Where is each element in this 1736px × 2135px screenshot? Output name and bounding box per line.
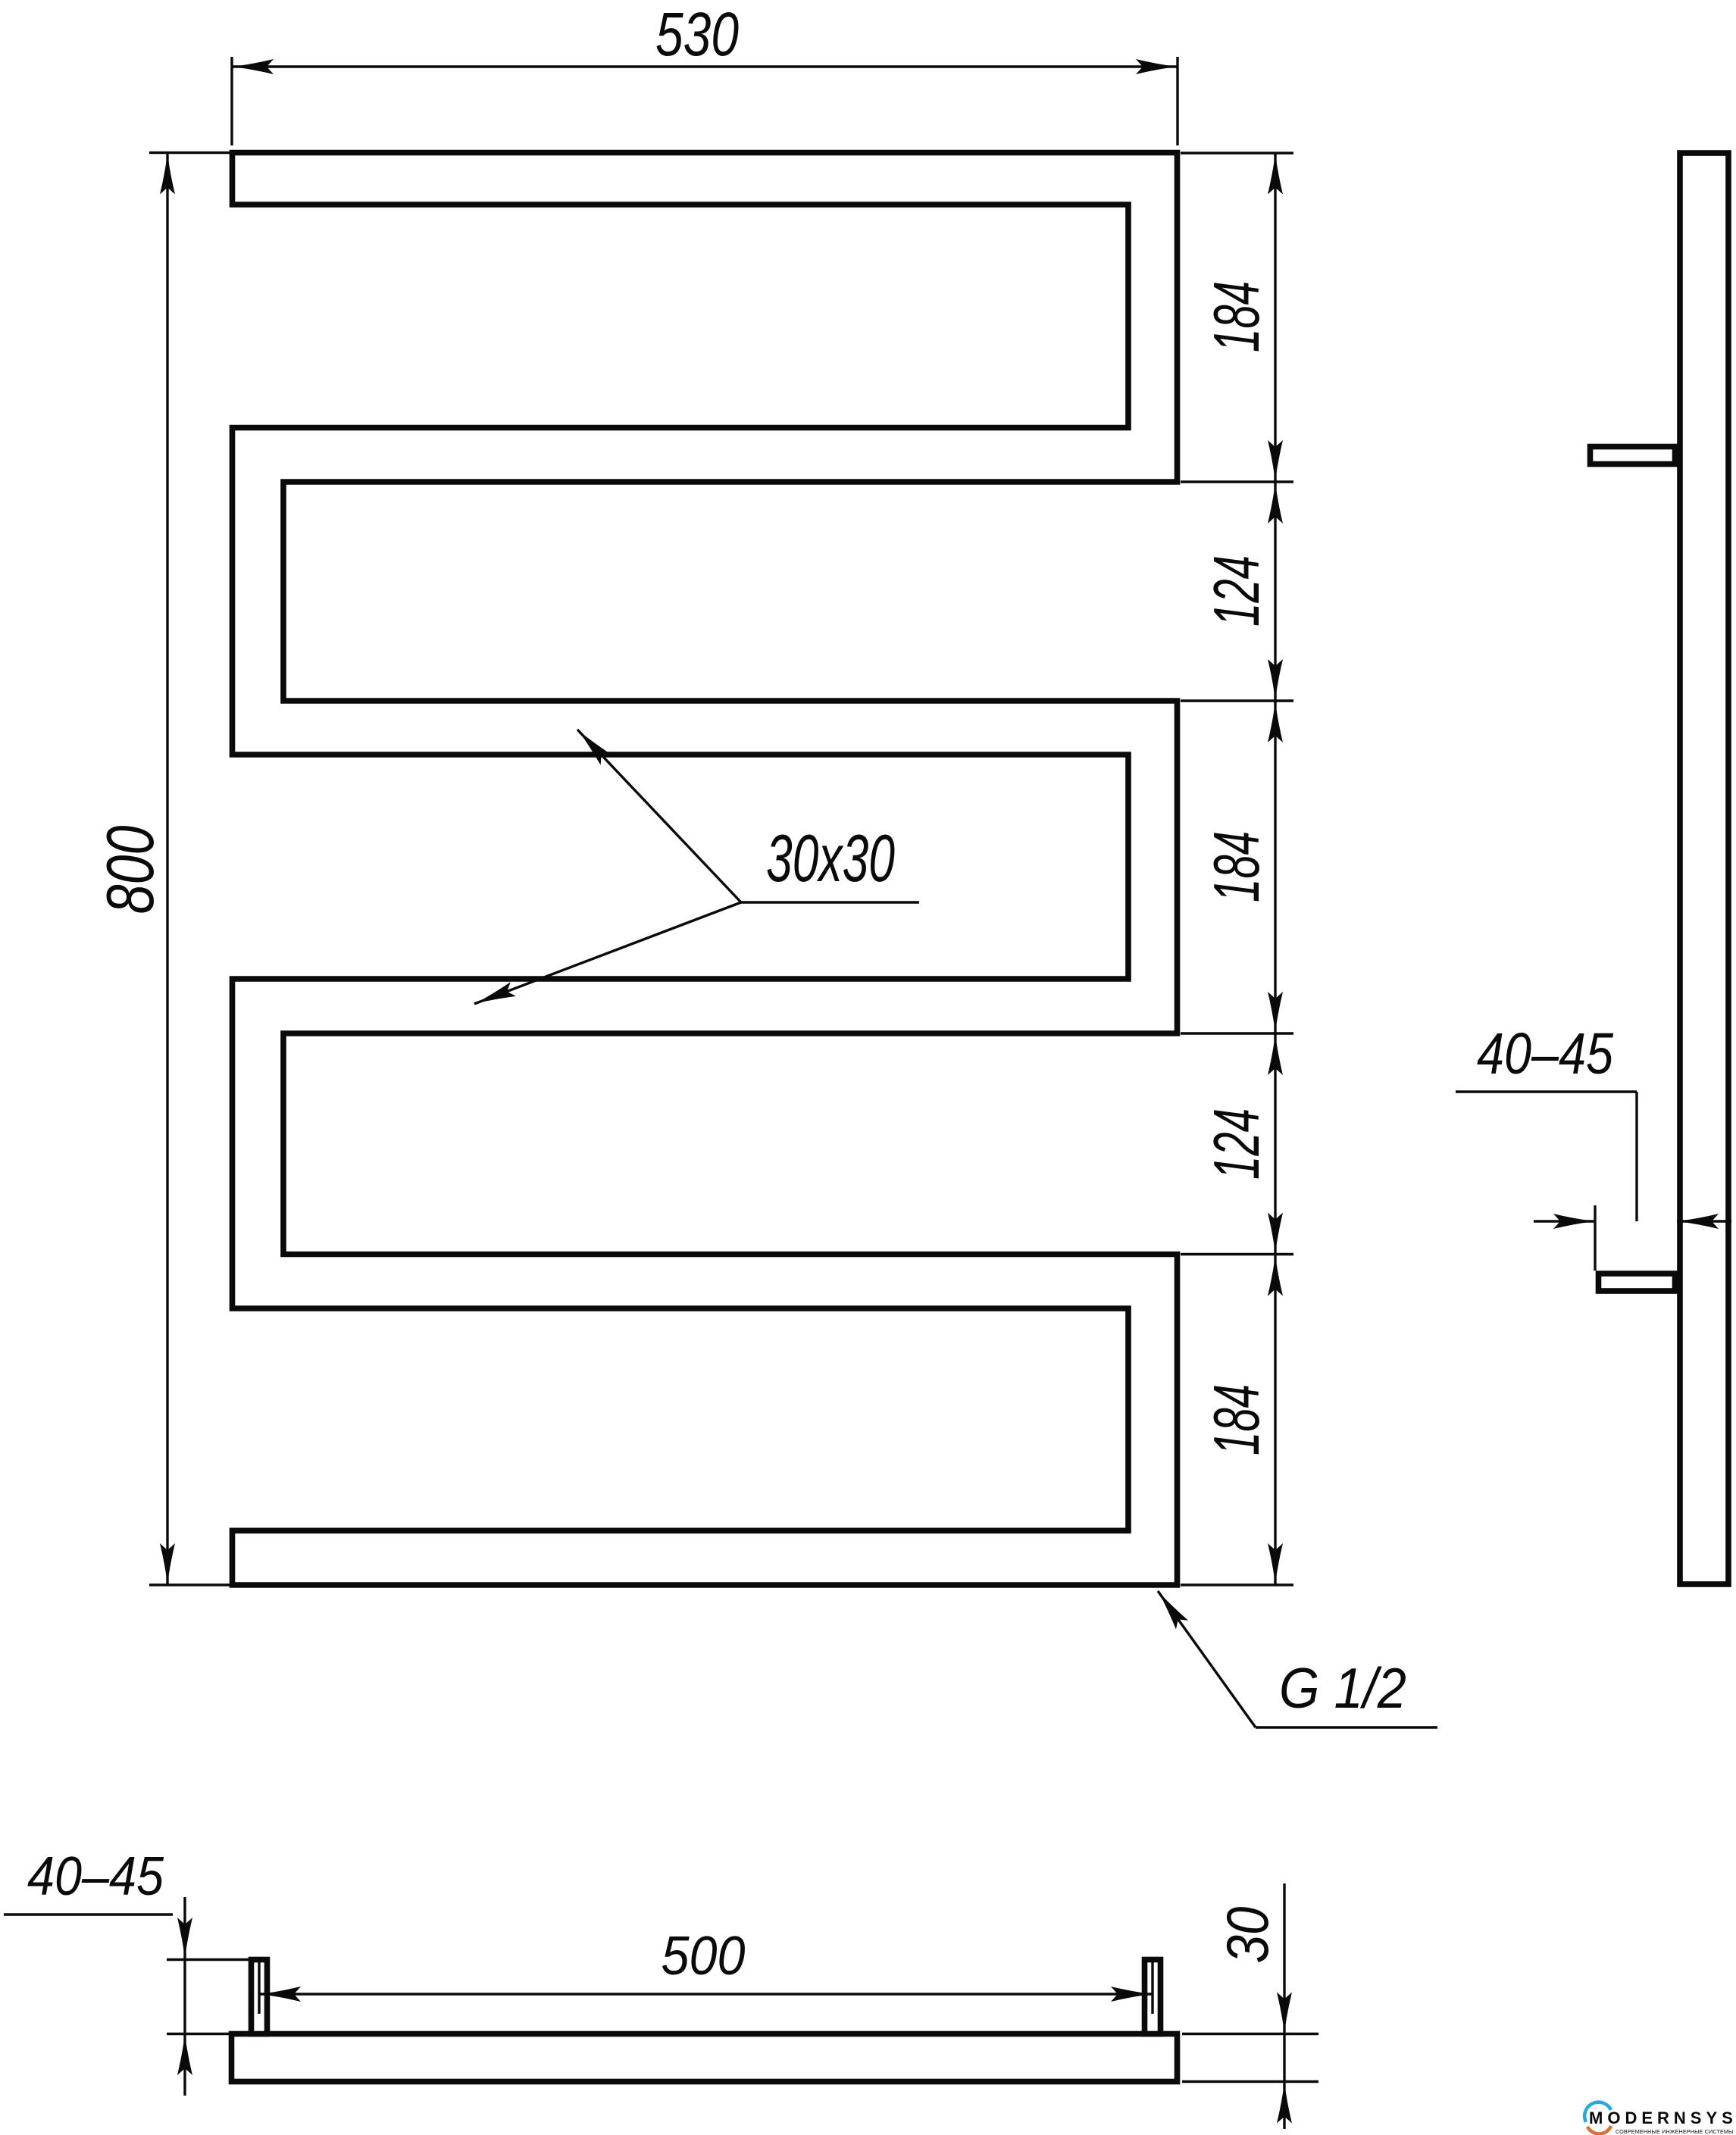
svg-text:MODERNSYS: MODERNSYS (1589, 2108, 1736, 2127)
svg-text:124: 124 (1201, 1108, 1273, 1180)
svg-text:500: 500 (662, 1926, 746, 1987)
svg-text:30x30: 30x30 (766, 821, 895, 896)
svg-text:СОВРЕМЕННЫЕ ИНЖЕНЕРНЫЕ СИСТЕМЫ: СОВРЕМЕННЫЕ ИНЖЕНЕРНЫЕ СИСТЕМЫ (1616, 2128, 1734, 2135)
svg-text:124: 124 (1201, 555, 1273, 627)
svg-text:800: 800 (92, 825, 167, 914)
svg-text:530: 530 (655, 0, 739, 69)
svg-text:30: 30 (1214, 1907, 1281, 1964)
svg-text:40–45: 40–45 (27, 1846, 164, 1907)
svg-text:184: 184 (1201, 1384, 1273, 1455)
svg-text:184: 184 (1201, 281, 1273, 352)
svg-text:40–45: 40–45 (1477, 1021, 1614, 1086)
svg-text:184: 184 (1201, 831, 1273, 902)
svg-text:G 1/2: G 1/2 (1279, 1656, 1406, 1720)
